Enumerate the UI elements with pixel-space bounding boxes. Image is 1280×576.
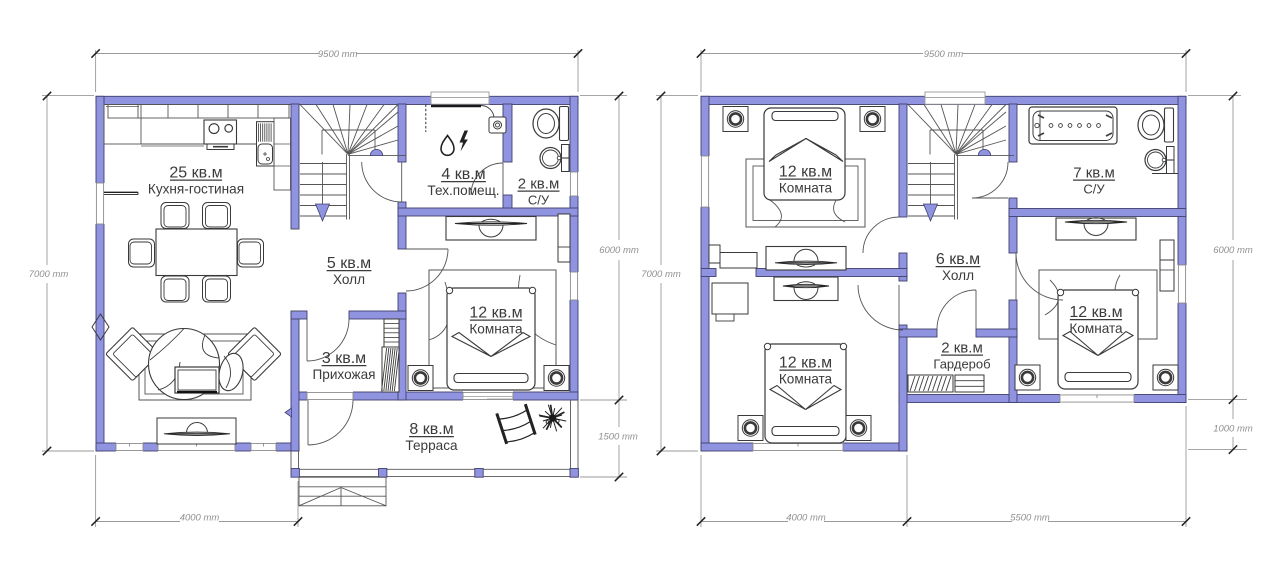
svg-text:2 кв.м: 2 кв.м [941,340,983,357]
svg-text:7 кв.м: 7 кв.м [1073,165,1115,182]
svg-text:4000 mm: 4000 mm [786,513,826,524]
svg-text:4000 mm: 4000 mm [180,513,220,524]
svg-text:Терраса: Терраса [405,438,458,453]
svg-text:Комната: Комната [779,372,833,387]
svg-text:12 кв.м: 12 кв.м [779,164,832,181]
svg-text:Прихожая: Прихожая [313,367,376,382]
svg-text:12 кв.м: 12 кв.м [469,305,522,322]
svg-text:5500 mm: 5500 mm [1010,513,1050,524]
svg-text:С/У: С/У [1083,182,1105,197]
svg-text:Тех.помещ.: Тех.помещ. [427,183,499,198]
svg-text:Комната: Комната [469,322,523,337]
svg-text:7000 mm: 7000 mm [29,269,69,280]
svg-text:5 кв.м: 5 кв.м [327,255,371,272]
svg-text:Комната: Комната [779,181,833,196]
svg-text:Комната: Комната [1069,321,1123,336]
svg-text:12 кв.м: 12 кв.м [1069,304,1122,321]
svg-text:6000 mm: 6000 mm [599,245,639,256]
svg-text:1500 mm: 1500 mm [598,432,638,443]
svg-text:25 кв.м: 25 кв.м [169,165,222,182]
svg-text:8 кв.м: 8 кв.м [409,421,453,438]
svg-text:2 кв.м: 2 кв.м [518,176,560,193]
svg-text:4 кв.м: 4 кв.м [441,166,485,183]
svg-text:7000 mm: 7000 mm [641,269,681,280]
svg-text:1000 mm: 1000 mm [1213,424,1253,435]
svg-text:6 кв.м: 6 кв.м [936,251,980,268]
svg-text:9500 mm: 9500 mm [318,49,358,60]
svg-text:9500 mm: 9500 mm [924,49,964,60]
svg-text:3 кв.м: 3 кв.м [322,350,366,367]
svg-text:Гардероб: Гардероб [933,357,990,372]
svg-text:Холл: Холл [942,268,974,283]
svg-text:С/У: С/У [528,193,550,208]
svg-text:6000 mm: 6000 mm [1213,245,1253,256]
svg-text:Кухня-гостиная: Кухня-гостиная [148,182,244,197]
svg-text:12 кв.м: 12 кв.м [779,355,832,372]
svg-text:Холл: Холл [333,272,365,287]
